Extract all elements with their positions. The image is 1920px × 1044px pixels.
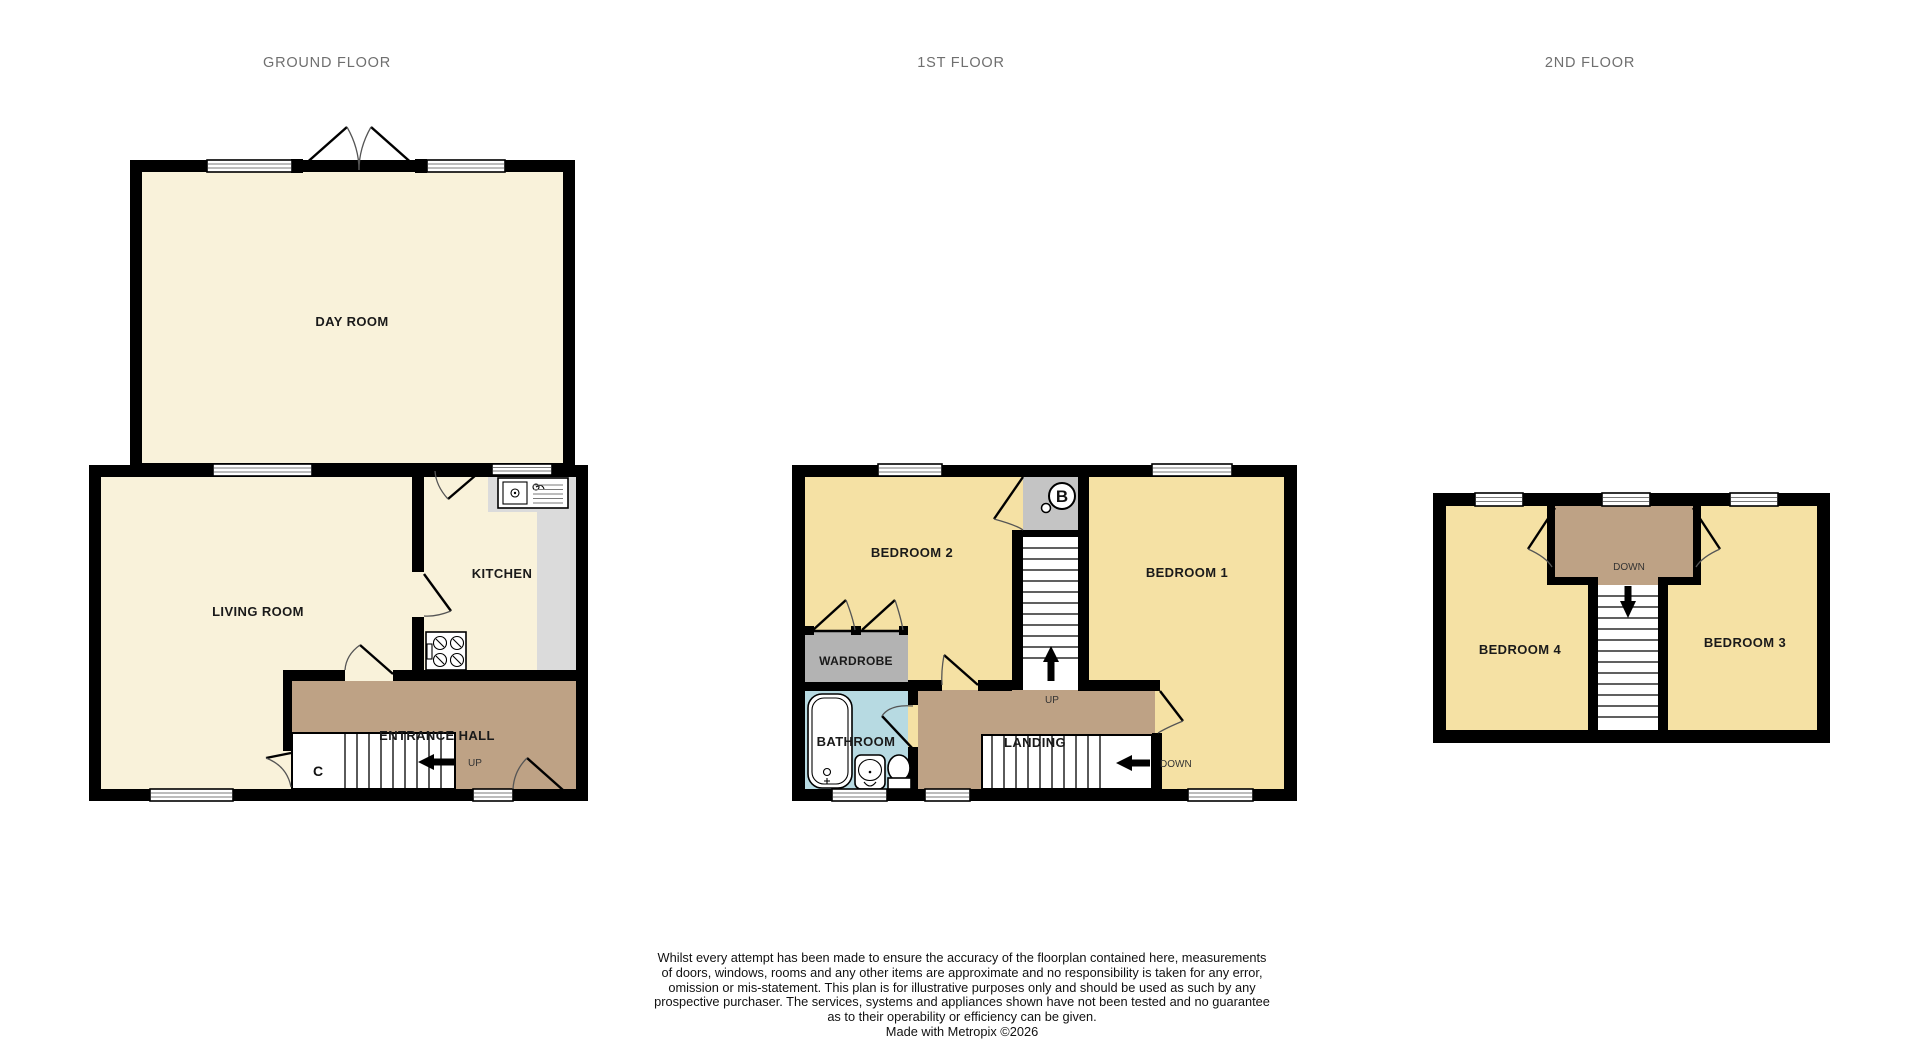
- basin-icon: [855, 755, 885, 789]
- window: [925, 789, 970, 801]
- disclaimer-line: of doors, windows, rooms and any other i…: [462, 966, 1462, 981]
- window: [473, 789, 513, 801]
- disclaimer-line: prospective purchaser. The services, sys…: [462, 995, 1462, 1010]
- day-room-label: DAY ROOM: [315, 314, 388, 329]
- entrance-hall-label: ENTRANCE HALL: [379, 728, 495, 743]
- svg-text:B: B: [1056, 487, 1068, 506]
- landing-label: LANDING: [1004, 735, 1066, 750]
- first-floor-title: 1ST FLOOR: [917, 55, 1005, 71]
- second-floor-title: 2ND FLOOR: [1545, 55, 1635, 71]
- floorplan-canvas: GROUND FLOOR 1ST FLOOR 2ND FLOOR: [0, 0, 1920, 1044]
- ground-up-label: UP: [468, 758, 482, 769]
- window: [1152, 464, 1232, 476]
- bathroom-label: BATHROOM: [817, 734, 896, 749]
- window: [832, 789, 887, 801]
- kitchen-label: KITCHEN: [472, 566, 533, 581]
- hob-icon: [426, 632, 466, 670]
- cupboard-label: C: [313, 763, 323, 779]
- window: [207, 160, 292, 172]
- sink-icon: [498, 478, 568, 508]
- disclaimer-line: as to their operability or efficiency ca…: [462, 1010, 1462, 1025]
- living-room-label: LIVING ROOM: [212, 604, 304, 619]
- second-floor-plan: BEDROOM 4 BEDROOM 3 DOWN: [1433, 493, 1830, 743]
- disclaimer-text: Whilst every attempt has been made to en…: [462, 951, 1462, 1040]
- disclaimer-line: Whilst every attempt has been made to en…: [462, 951, 1462, 966]
- disclaimer-credit: Made with Metropix ©2026: [462, 1025, 1462, 1040]
- floorplan-page: GROUND FLOOR 1ST FLOOR 2ND FLOOR: [0, 0, 1920, 1044]
- window: [427, 160, 505, 172]
- wardrobe-label: WARDROBE: [819, 654, 893, 668]
- stairs-up-first: [1023, 537, 1078, 690]
- first-down-label: DOWN: [1160, 759, 1192, 770]
- ground-floor-plan: C UP: [89, 127, 588, 801]
- first-up-label: UP: [1045, 695, 1059, 706]
- window: [150, 789, 233, 801]
- window: [878, 464, 942, 476]
- window: [1602, 493, 1650, 506]
- ground-floor-title: GROUND FLOOR: [263, 55, 391, 71]
- bedroom2-label: BEDROOM 2: [871, 545, 953, 560]
- bedroom1-label: BEDROOM 1: [1146, 565, 1228, 580]
- window: [1730, 493, 1778, 506]
- bedroom3-label: BEDROOM 3: [1704, 635, 1786, 650]
- toilet-icon: [888, 755, 911, 789]
- wall: [1023, 530, 1078, 537]
- window: [1188, 789, 1253, 801]
- window: [1475, 493, 1523, 506]
- window: [492, 464, 552, 475]
- second-down-label: DOWN: [1613, 562, 1645, 573]
- stairs-down-second: [1598, 585, 1658, 730]
- window: [213, 464, 312, 476]
- first-floor-plan: B: [792, 464, 1297, 801]
- second-landing-floor: [1555, 506, 1693, 585]
- disclaimer-line: omission or mis-statement. This plan is …: [462, 981, 1462, 996]
- bedroom4-label: BEDROOM 4: [1479, 642, 1562, 657]
